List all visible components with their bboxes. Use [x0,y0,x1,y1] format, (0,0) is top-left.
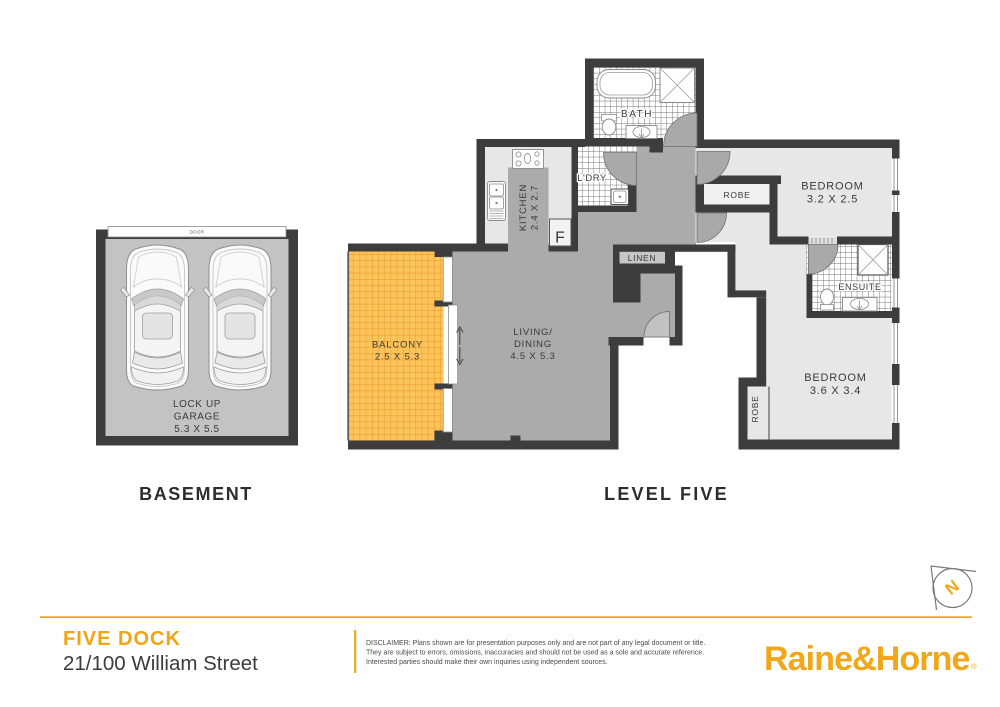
svg-text:3.6 X 3.4: 3.6 X 3.4 [810,385,861,397]
svg-text:21/100 William Street: 21/100 William Street [63,652,258,675]
svg-text:DINING: DINING [514,339,552,350]
svg-text:BALCONY: BALCONY [372,340,423,351]
svg-text:F: F [555,230,565,247]
svg-text:4.5 X 5.3: 4.5 X 5.3 [510,351,555,362]
svg-text:BEDROOM: BEDROOM [801,181,863,193]
svg-text:BEDROOM: BEDROOM [804,372,866,384]
svg-text:They are subject to errors, om: They are subject to errors, omissions, i… [366,650,704,657]
svg-text:Raine&Horne: Raine&Horne [764,640,969,678]
svg-text:5.3 X 5.5: 5.3 X 5.5 [174,424,219,435]
svg-text:BASEMENT: BASEMENT [139,484,253,504]
svg-text:LEVEL FIVE: LEVEL FIVE [604,484,729,504]
svg-text:3.2 X 2.5: 3.2 X 2.5 [807,194,858,206]
svg-text:2.4 X 2.7: 2.4 X 2.7 [530,185,541,230]
svg-text:ENSUITE: ENSUITE [838,282,881,292]
svg-text:DOOR: DOOR [190,230,205,235]
svg-text:FIVE DOCK: FIVE DOCK [63,628,181,650]
svg-text:KITCHEN: KITCHEN [518,184,529,231]
svg-text:2.5 X 5.3: 2.5 X 5.3 [375,352,420,363]
svg-text:DISCLAIMER: Plans shown are fo: DISCLAIMER: Plans shown are for presenta… [366,640,705,647]
svg-text:LINEN: LINEN [628,253,657,263]
svg-text:BATH: BATH [621,109,653,120]
svg-text:ROBE: ROBE [750,396,760,423]
svg-text:LIVING/: LIVING/ [513,327,552,338]
svg-text:ROBE: ROBE [724,190,751,200]
svg-text:Interested parties should make: Interested parties should make their own… [366,659,608,666]
svg-text:LOCK UP: LOCK UP [173,399,221,410]
svg-text:GARAGE: GARAGE [174,412,220,423]
svg-text:®: ® [971,662,977,671]
svg-text:L'DRY: L'DRY [577,173,607,184]
